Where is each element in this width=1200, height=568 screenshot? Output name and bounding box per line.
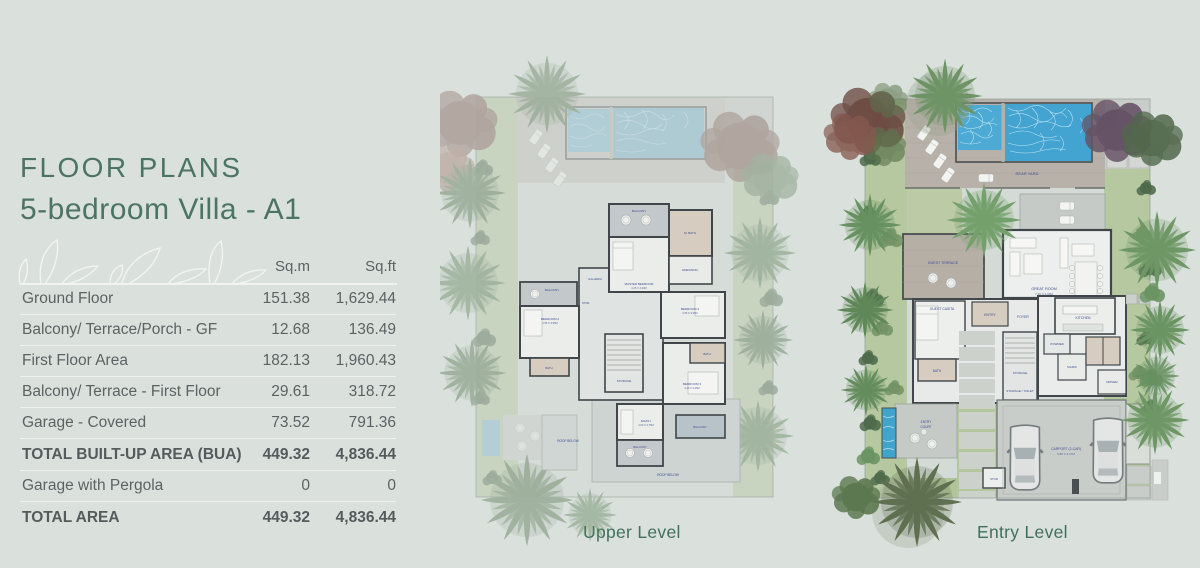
svg-text:BEDROOM 4: BEDROOM 4 — [681, 307, 699, 311]
svg-text:STOR.: STOR. — [582, 301, 590, 305]
svg-text:CARPORT (2-CAR): CARPORT (2-CAR) — [1051, 447, 1081, 451]
svg-text:BATH: BATH — [545, 366, 552, 370]
svg-text:ROOF BELOW: ROOF BELOW — [657, 473, 679, 477]
svg-text:BATH: BATH — [703, 352, 710, 356]
svg-text:4.25 X 4.30M: 4.25 X 4.30M — [631, 286, 646, 290]
svg-text:STOR: STOR — [990, 477, 998, 481]
svg-text:ENTRY: ENTRY — [921, 420, 933, 424]
svg-text:POWDER: POWDER — [1050, 342, 1064, 346]
svg-text:4.00 X 3.75M: 4.00 X 3.75M — [638, 423, 653, 427]
svg-text:COURT: COURT — [920, 425, 931, 429]
svg-text:BALCONY: BALCONY — [545, 288, 559, 292]
svg-text:ROOF BELOW: ROOF BELOW — [557, 439, 579, 443]
svg-text:GUEST TERRACE: GUEST TERRACE — [928, 261, 959, 265]
svg-text:STORAGE: STORAGE — [617, 379, 632, 383]
svg-text:BALCONY: BALCONY — [633, 445, 647, 449]
svg-text:BEDROOM 2: BEDROOM 2 — [541, 317, 559, 321]
svg-text:STORAGE: STORAGE — [1013, 371, 1028, 375]
svg-text:GALLERIA: GALLERIA — [588, 277, 602, 281]
svg-text:MASTER BEDROOM: MASTER BEDROOM — [625, 282, 654, 286]
svg-text:DRIVER: DRIVER — [1106, 380, 1118, 384]
svg-text:BALCONY: BALCONY — [693, 425, 707, 429]
svg-text:GUEST CASITA: GUEST CASITA — [930, 307, 955, 311]
svg-text:STORAGE / TOILET: STORAGE / TOILET — [1006, 389, 1034, 393]
svg-text:KITCHEN: KITCHEN — [1076, 316, 1091, 320]
svg-text:M. BATH: M. BATH — [684, 231, 696, 235]
svg-text:BATH: BATH — [933, 369, 942, 373]
svg-text:BALCONY: BALCONY — [632, 209, 646, 213]
svg-text:GREAT ROOM: GREAT ROOM — [1031, 287, 1057, 291]
svg-text:BEDROOM 3: BEDROOM 3 — [683, 382, 701, 386]
svg-text:REAR YARD: REAR YARD — [1016, 171, 1039, 176]
svg-text:FAMILY: FAMILY — [641, 419, 651, 423]
svg-text:4.30 X 3.45M: 4.30 X 3.45M — [684, 386, 699, 390]
svg-text:MAIDS: MAIDS — [1067, 365, 1077, 369]
svg-text:3.55 X 3.95M: 3.55 X 3.95M — [682, 311, 697, 315]
svg-text:ENTRY: ENTRY — [984, 313, 996, 317]
svg-text:FOYER: FOYER — [1017, 315, 1029, 319]
svg-text:DRESSING: DRESSING — [682, 268, 698, 272]
svg-text:5.80 X 6.27M: 5.80 X 6.27M — [1057, 452, 1075, 456]
svg-text:3.55 X 3.95M: 3.55 X 3.95M — [542, 321, 557, 325]
